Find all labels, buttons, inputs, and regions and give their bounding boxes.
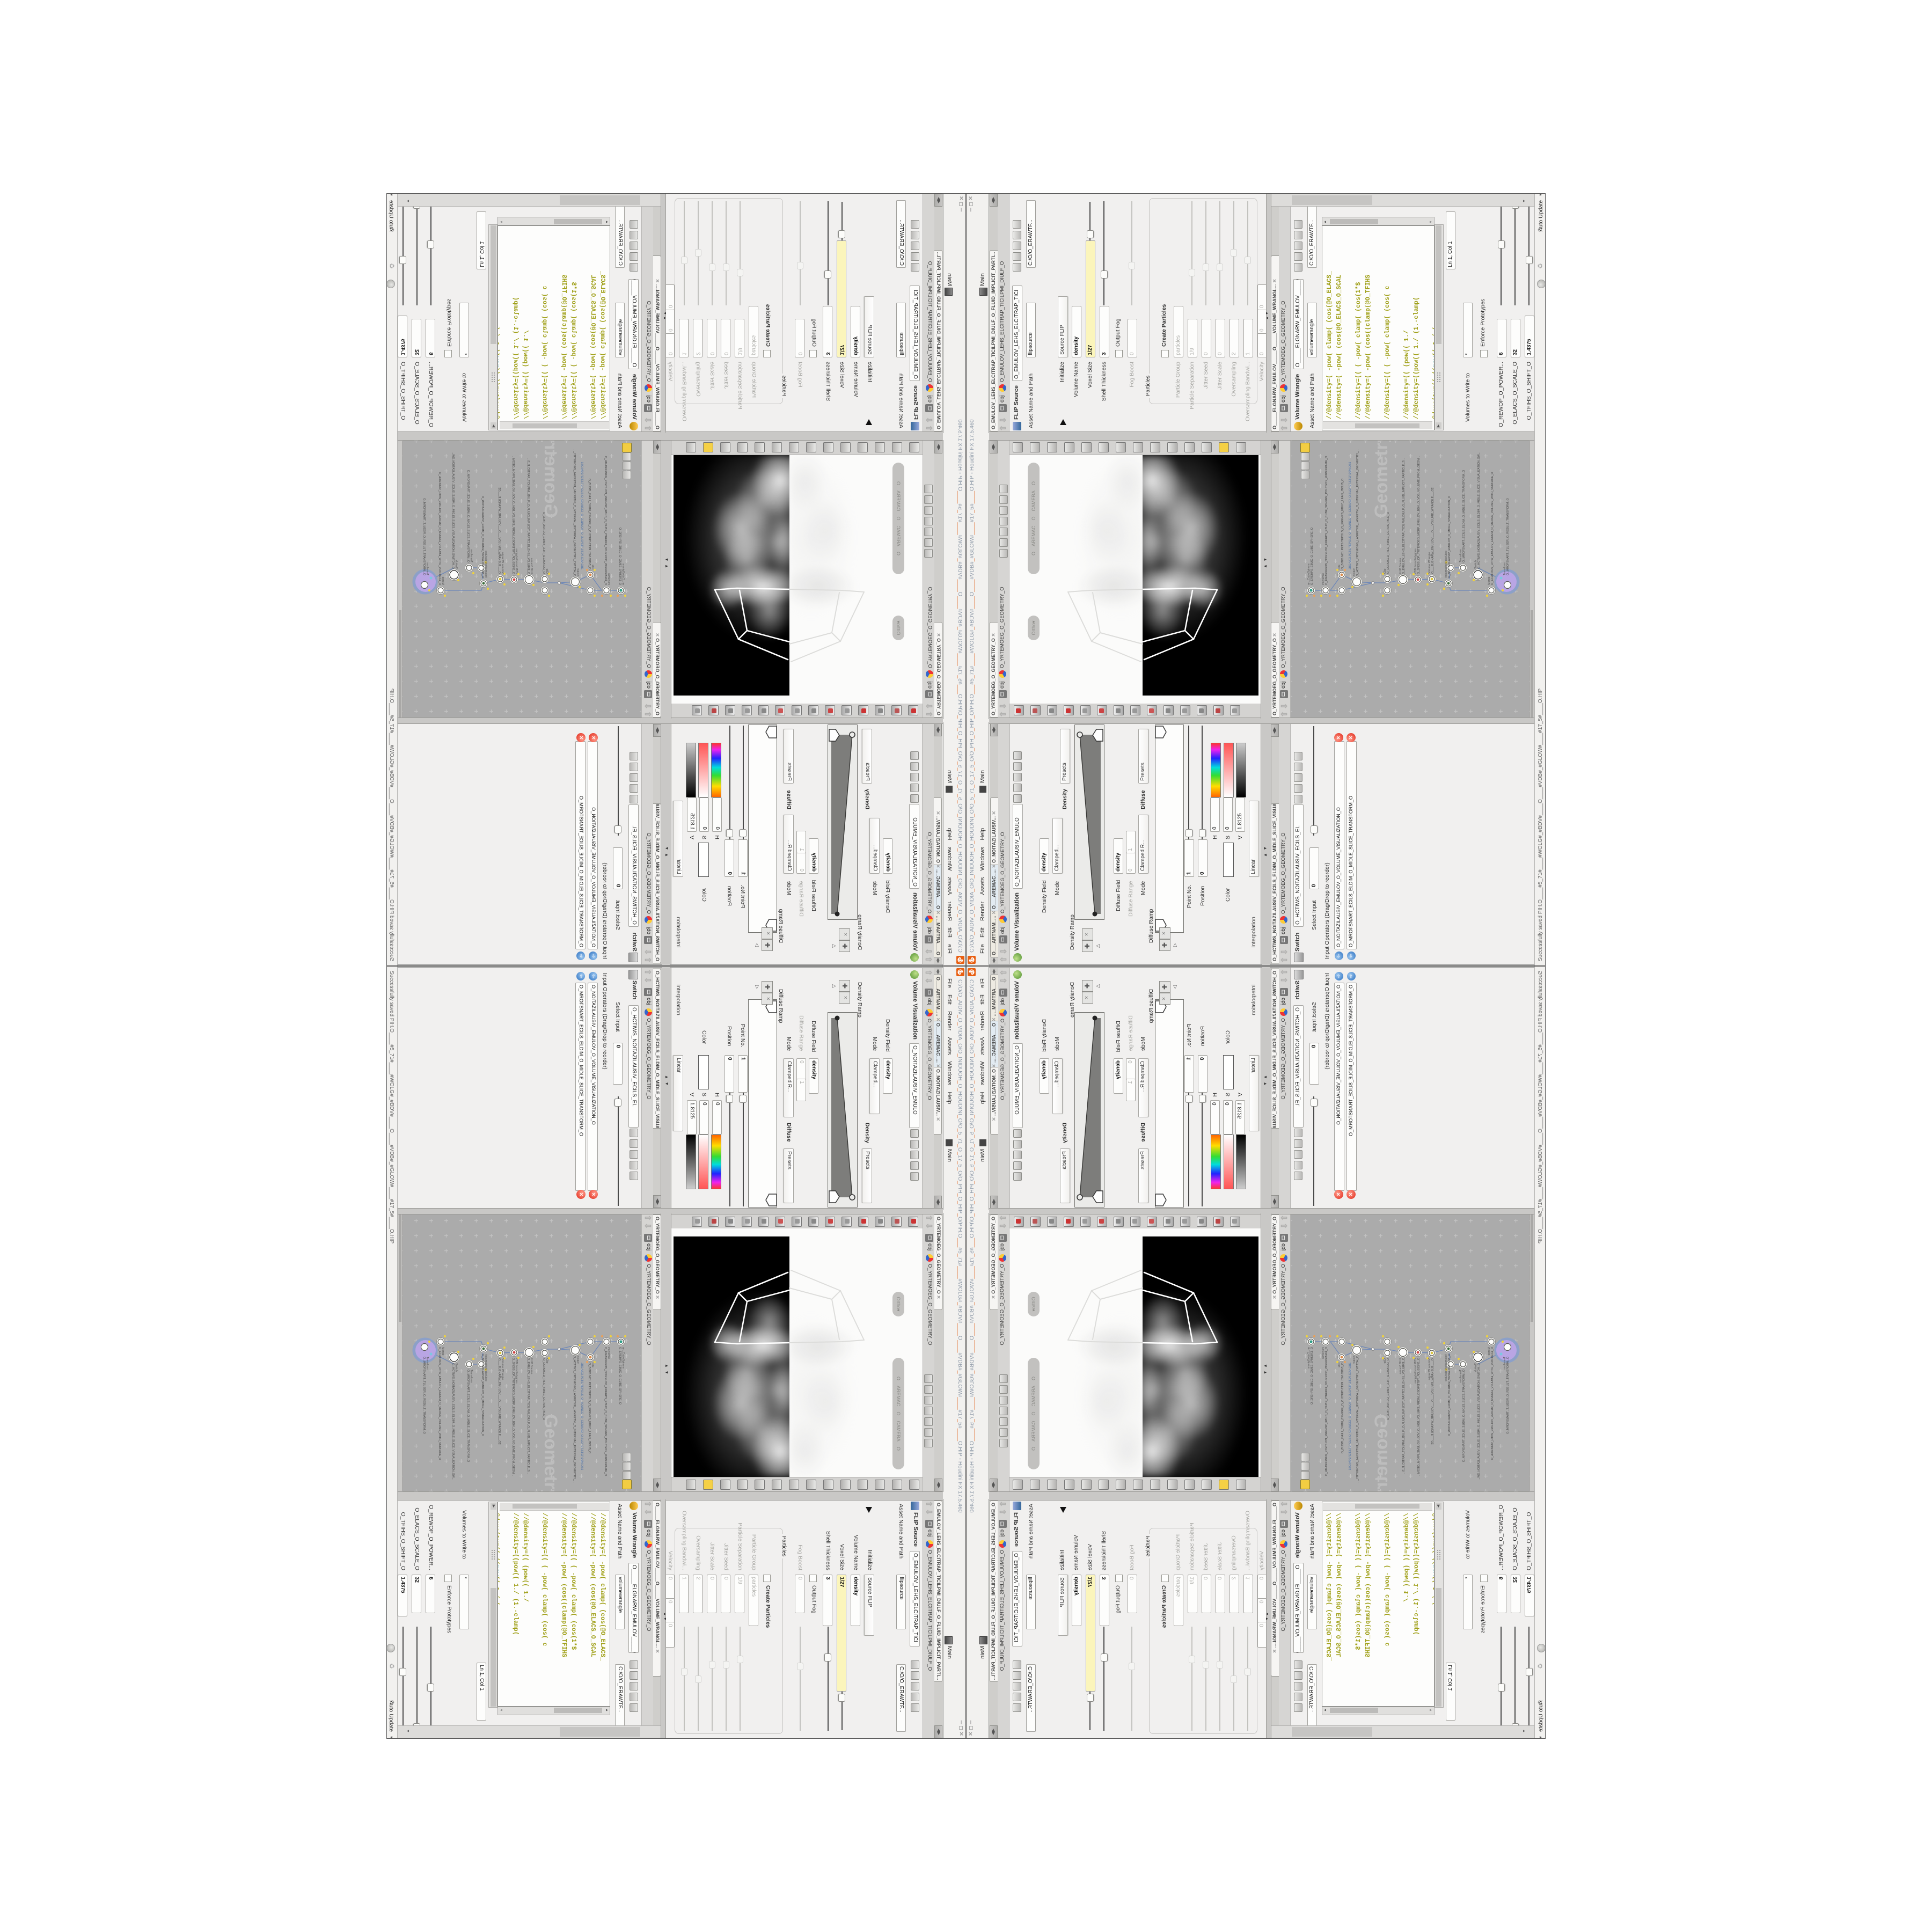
svg-text://@density=( -pow( (cos((cl: //@density=( -pow( (cos((clamp(@O_TFIHS [560, 275, 567, 419]
svg-text:O_MROFSNART_ECILS_ELDIM_O_MIDL: O_MROFSNART_ECILS_ELDIM_O_MIDLE_SLICE_TR… [466, 1370, 470, 1462]
svg-text:O_NOITAZILAUSIV_EMULOV_O_MIDLE: O_NOITAZILAUSIV_EMULOV_O_MIDLE_VISUALIZA… [1448, 495, 1451, 578]
svg-text:O_HCTIWS_NOITAZILAUSIV_ECILS_E: O_HCTIWS_NOITAZILAUSIV_ECILS_ELDIM_O_MID… [451, 1363, 455, 1480]
svg-text://@density=(( (pow((: //@density=(( (pow(( 1./ [522, 330, 529, 419]
svg-text:O_SNOGLOP_YRTEMOEG_MORF_EMULOV: O_SNOGLOP_YRTEMOEG_MORF_EMULOV_BDV_O_VDB… [1417, 456, 1421, 574]
svg-text:O_SNOGLOP_YRTEMOEG_MORF_EMULOV: O_SNOGLOP_YRTEMOEG_MORF_EMULOV_BDV_O_VDB… [511, 456, 515, 574]
svg-text:O_ECAFRUS_HTIW_EMULOV_EGREM_O_: O_ECAFRUS_HTIW_EMULOV_EGREM_O_MERGE_VOLU… [1491, 472, 1494, 585]
svg-text:O___ELGNARW_EMULOV___O___VOLUM: O___ELGNARW_EMULOV___O___VOLUME_WRANGLE_… [1431, 1358, 1435, 1445]
svg-text:O_EMULOV_LEHS_ELCITRAP_TICILPM: O_EMULOV_LEHS_ELCITRAP_TICILPMI_DIULF_O_… [1402, 458, 1406, 574]
svg-text:JBO.M03.PETS.TEPOLS_O_SQUNEG_O: JBO.M03.PETS.TEPOLS_O_SQUNEG_O_GENIUS3_O… [580, 462, 583, 569]
svg-text://@density=( -pow( clamp(: //@density=( -pow( clamp( (cos(@O_ELACS_ [1326, 271, 1333, 419]
svg-text:O_ECAFRUS_HTIW_EMULOV_EGREM_O_: O_ECAFRUS_HTIW_EMULOV_EGREM_O_MERGE_VOLU… [438, 1347, 441, 1460]
svg-text:O_HCTIWS_YRTEMOEG_LANRETXE_LAN: O_HCTIWS_YRTEMOEG_LANRETXE_LANRETNI_O_IN… [1356, 449, 1359, 576]
svg-text:O_HCTIWS_YRTEMOEG_LANRETXE_LAN: O_HCTIWS_YRTEMOEG_LANRETXE_LANRETNI_O_IN… [573, 1356, 576, 1483]
svg-text://@density=( -pow( (cos((cl: //@density=( -pow( (cos((clamp(@O_TFIHS [1365, 275, 1372, 419]
svg-text:O_EMARFERIW_NOGYLOP_EREHPS_EBU: O_EMARFERIW_NOGYLOP_EREHPS_EBUC_O_CUBE_S… [604, 456, 607, 585]
svg-text://@density=(( (pow((: //@density=(( (pow(( 1./ [522, 1513, 529, 1602]
svg-text:O_MROFSNART_TLUSER_O_RESULT_TR: O_MROFSNART_TLUSER_O_RESULT_TRANSFORM_O [422, 498, 426, 575]
svg-text://@density=(( ( -pow( clamp: //@density=(( ( -pow( clamp( (cos( c [1384, 1513, 1391, 1646]
svg-text:O_HCTIWS_YRTEMOEG_LANRETXE_LAN: O_HCTIWS_YRTEMOEG_LANRETXE_LANRETNI_O_IN… [1356, 1356, 1359, 1483]
svg-text:O_ECAFRUS_HTIW_EMULOV_EGREM_O_: O_ECAFRUS_HTIW_EMULOV_EGREM_O_MERGE_VOLU… [1491, 1347, 1494, 1460]
svg-text:O_HCTIWS_YRTEMOEG_LANRETXE_LAN: O_HCTIWS_YRTEMOEG_LANRETXE_LANRETNI_O_IN… [573, 449, 576, 576]
svg-text:O_EGRUSED_PILC_BMILC_EGRUS_PIL: O_EGRUSED_PILC_BMILC_EGRUS_PILC_O [542, 1358, 545, 1421]
svg-text://@density=( -pow( (cos(@O: //@density=( -pow( (cos(@O_ELACS_O_SCAL [589, 1513, 596, 1657]
svg-text://@density=(( ( -pow( clamp: //@density=(( ( -pow( clamp( (cos( c [541, 286, 548, 419]
svg-text:O_EMULOV_LEHS_ELCITRAP_TICILPM: O_EMULOV_LEHS_ELCITRAP_TICILPMI_DIULF_O_… [1402, 1358, 1406, 1474]
svg-text:O_EMARFERIW_NOGYLOP_EREHPS_EBU: O_EMARFERIW_NOGYLOP_EREHPS_EBUC_O_CUBE_S… [1325, 1347, 1328, 1476]
svg-text:O_EGRUSED_PILC_BMILC_EGRUS_PIL: O_EGRUSED_PILC_BMILC_EGRUS_PILC_O [542, 511, 545, 574]
svg-text:O_NOITAZILAUSIV_EMULOV_O_MIDLE: O_NOITAZILAUSIV_EMULOV_O_MIDLE_VISUALIZA… [1448, 1354, 1451, 1437]
svg-text:O_BJBO.M01.PETS.TEPOLS_O_EREHP: O_BJBO.M01.PETS.TEPOLS_O_EREHPS_EBUC_LEA… [1341, 478, 1344, 569]
svg-text:O___ELGNARW_EMULOV___O___VOLUM: O___ELGNARW_EMULOV___O___VOLUME_WRANGLE_… [497, 487, 501, 574]
svg-text:O_EMARFERIW_NOGYLOP_EREHPS_EBU: O_EMARFERIW_NOGYLOP_EREHPS_EBUC_O_CUBE_S… [1325, 456, 1328, 585]
svg-text:O_EMULOV_LEHS_ELCITRAP_TICILPM: O_EMULOV_LEHS_ELCITRAP_TICILPMI_DIULF_O_… [526, 458, 530, 574]
svg-text:O_BJBO.M01.PETS.TEPOLS_O_EREHP: O_BJBO.M01.PETS.TEPOLS_O_EREHPS_EBUC_LEA… [588, 478, 591, 569]
svg-text://@density=( -pow( (cos(@O: //@density=( -pow( (cos(@O_ELACS_O_SCAL [1336, 1513, 1343, 1657]
svg-text://@density=(( ( -pow( clamp: //@density=(( ( -pow( clamp( (cos( c [541, 1513, 548, 1646]
svg-text://@density=( -pow( (cos(@O: //@density=( -pow( (cos(@O_ELACS_O_SCAL [589, 275, 596, 419]
svg-text://@density=( -pow( (cos(@O: //@density=( -pow( (cos(@O_ELACS_O_SCAL [1336, 275, 1343, 419]
svg-text:O_BJBO.M01.PETS.TEPOLS_O_EREHP: O_BJBO.M01.PETS.TEPOLS_O_EREHPS_EBUC_LEA… [588, 1363, 591, 1454]
svg-text:O_EREHPS_EBUC_O_CUBE_SPHERE_O: O_EREHPS_EBUC_O_CUBE_SPHERE_O [618, 527, 621, 585]
svg-text://@density=(( (pow((: //@density=(( (pow(( 1./ [1403, 1513, 1410, 1602]
svg-text:O_MROFSNART_TLUSER_O_RESULT_TR: O_MROFSNART_TLUSER_O_RESULT_TRANSFORM_O [422, 1357, 426, 1434]
svg-text:O_ECAFRUS_HTIW_EMULOV_EGREM_O_: O_ECAFRUS_HTIW_EMULOV_EGREM_O_MERGE_VOLU… [438, 472, 441, 585]
svg-text://@density=(( ( -pow( clamp: //@density=(( ( -pow( clamp( (cos(1*$ [1355, 282, 1362, 419]
svg-text:O_HCTIWS_NOITAZILAUSIV_ECILS_E: O_HCTIWS_NOITAZILAUSIV_ECILS_ELDIM_O_MID… [1477, 452, 1481, 569]
svg-text://@density=( -pow( (cos((cl: //@density=( -pow( (cos((clamp(@O_TFIHS [560, 1513, 567, 1657]
svg-text:O_EMULOV_LEHS_ELCITRAP_TICILPM: O_EMULOV_LEHS_ELCITRAP_TICILPMI_DIULF_O_… [526, 1358, 530, 1474]
svg-text:@density=(( ((pow(( 1./: @density=(( ((pow(( 1./ ( [497, 326, 500, 419]
svg-text:JBO.M03.PETS.TEPOLS_O_SQUNEG_O: JBO.M03.PETS.TEPOLS_O_SQUNEG_O_GENIUS3_O… [1349, 1363, 1352, 1470]
svg-text:O_SNOGLOP_YRTEMOEG_MORF_EMULOV: O_SNOGLOP_YRTEMOEG_MORF_EMULOV_BDV_O_VDB… [511, 1358, 515, 1476]
svg-text:O_NOITAZILAUSIV_EMULOV_O_MIDLE: O_NOITAZILAUSIV_EMULOV_O_MIDLE_VISUALIZA… [481, 495, 484, 578]
svg-text:O_MROFSNART_ECILS_ELDIM_O_MIDL: O_MROFSNART_ECILS_ELDIM_O_MIDLE_SLICE_TR… [466, 470, 470, 562]
svg-text://@density=(( ( -pow( clamp: //@density=(( ( -pow( clamp( (cos( c [1384, 286, 1391, 419]
svg-text://@density=(( ( -pow( clamp: //@density=(( ( -pow( clamp( (cos(1*$ [1355, 1513, 1362, 1650]
svg-text:O_EREHPS_EBUC_O_CUBE_SPHERE_O: O_EREHPS_EBUC_O_CUBE_SPHERE_O [1311, 527, 1314, 585]
svg-text:O___ELGNARW_EMULOV___O___VOLUM: O___ELGNARW_EMULOV___O___VOLUME_WRANGLE_… [1431, 487, 1435, 574]
svg-text:O_MROFSNART_TLUSER_O_RESULT_TR: O_MROFSNART_TLUSER_O_RESULT_TRANSFORM_O [1506, 498, 1510, 575]
svg-text://@density=((pow(( 1./ (1.-: //@density=((pow(( 1./ (1.-clamp( [1413, 297, 1420, 419]
svg-text://@density=( -pow( clamp(: //@density=( -pow( clamp( (cos(@O_ELACS_ [599, 1513, 606, 1661]
svg-text://@density=((pow(( 1./ (1.-: //@density=((pow(( 1./ (1.-clamp( [512, 297, 519, 419]
svg-text://@density=((pow(( 1./ (1.-: //@density=((pow(( 1./ (1.-clamp( [1413, 1513, 1420, 1635]
svg-text:O_BJBO.M01.PETS.TEPOLS_O_EREHP: O_BJBO.M01.PETS.TEPOLS_O_EREHPS_EBUC_LEA… [1341, 1363, 1344, 1454]
svg-text://@density=( -pow( (cos((cl: //@density=( -pow( (cos((clamp(@O_TFIHS [1365, 1513, 1372, 1657]
svg-text:O_EGRUSED_PILC_BMILC_EGRUS_PIL: O_EGRUSED_PILC_BMILC_EGRUS_PILC_O [1387, 511, 1390, 574]
svg-text:O_NOITAZILAUSIV_EMULOV_O_MIDLE: O_NOITAZILAUSIV_EMULOV_O_MIDLE_VISUALIZA… [481, 1354, 484, 1437]
svg-text://@density=(( (pow((: //@density=(( (pow(( 1./ [1403, 330, 1410, 419]
svg-text:O_HCTIWS_NOITAZILAUSIV_ECILS_E: O_HCTIWS_NOITAZILAUSIV_ECILS_ELDIM_O_MID… [1477, 1363, 1481, 1480]
svg-text://@density=((pow(( 1./ (1.-: //@density=((pow(( 1./ (1.-clamp( [512, 1513, 519, 1635]
svg-text:O_EREHPS_EBUC_O_CUBE_SPHERE_O: O_EREHPS_EBUC_O_CUBE_SPHERE_O [1311, 1347, 1314, 1405]
svg-text://@density=( -pow( clamp(: //@density=( -pow( clamp( (cos(@O_ELACS_ [599, 271, 606, 419]
svg-text:JBO.M03.PETS.TEPOLS_O_SQUNEG_O: JBO.M03.PETS.TEPOLS_O_SQUNEG_O_GENIUS3_O… [1349, 462, 1352, 569]
svg-text:O_MROFSNART_ECILS_ELDIM_O_MIDL: O_MROFSNART_ECILS_ELDIM_O_MIDLE_SLICE_TR… [1462, 1370, 1466, 1462]
svg-text:O_EGRUSED_PILC_BMILC_EGRUS_PIL: O_EGRUSED_PILC_BMILC_EGRUS_PILC_O [1387, 1358, 1390, 1421]
svg-text:O_EMARFERIW_NOGYLOP_EREHPS_EBU: O_EMARFERIW_NOGYLOP_EREHPS_EBUC_O_CUBE_S… [604, 1347, 607, 1476]
svg-text:@density=(( ((pow(( 1./: @density=(( ((pow(( 1./ ( [497, 1513, 500, 1606]
svg-text:O_MROFSNART_TLUSER_O_RESULT_TR: O_MROFSNART_TLUSER_O_RESULT_TRANSFORM_O [1506, 1357, 1510, 1434]
svg-text://@density=(( ( -pow( clamp: //@density=(( ( -pow( clamp( (cos(1*$ [570, 1513, 577, 1650]
svg-text:O_EREHPS_EBUC_O_CUBE_SPHERE_O: O_EREHPS_EBUC_O_CUBE_SPHERE_O [618, 1347, 621, 1405]
svg-text:O___ELGNARW_EMULOV___O___VOLUM: O___ELGNARW_EMULOV___O___VOLUME_WRANGLE_… [497, 1358, 501, 1445]
svg-text:O_MROFSNART_ECILS_ELDIM_O_MIDL: O_MROFSNART_ECILS_ELDIM_O_MIDLE_SLICE_TR… [1462, 470, 1466, 562]
svg-text:O_SNOGLOP_YRTEMOEG_MORF_EMULOV: O_SNOGLOP_YRTEMOEG_MORF_EMULOV_BDV_O_VDB… [1417, 1358, 1421, 1476]
svg-text://@density=(( ( -pow( clamp: //@density=(( ( -pow( clamp( (cos(1*$ [570, 282, 577, 419]
svg-text:O_HCTIWS_NOITAZILAUSIV_ECILS_E: O_HCTIWS_NOITAZILAUSIV_ECILS_ELDIM_O_MID… [451, 452, 455, 569]
svg-text:JBO.M03.PETS.TEPOLS_O_SQUNEG_O: JBO.M03.PETS.TEPOLS_O_SQUNEG_O_GENIUS3_O… [580, 1363, 583, 1470]
svg-text://@density=( -pow( clamp(: //@density=( -pow( clamp( (cos(@O_ELACS_ [1326, 1513, 1333, 1661]
